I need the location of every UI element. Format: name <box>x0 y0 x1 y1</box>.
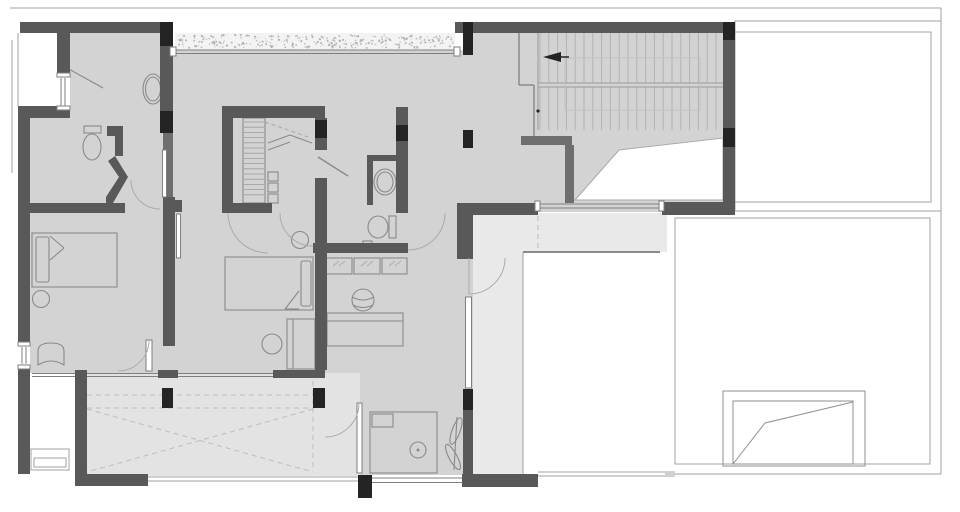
rect-shape <box>723 128 735 147</box>
rect-shape <box>463 130 473 148</box>
rect-shape <box>170 47 176 56</box>
rect-shape <box>20 22 173 33</box>
rect-shape <box>115 136 123 156</box>
rect-shape <box>57 106 70 110</box>
rect-shape <box>463 389 473 410</box>
rect-shape <box>163 243 175 346</box>
rect-shape <box>222 118 233 206</box>
door-leaf <box>466 297 472 388</box>
rect-shape <box>30 108 173 213</box>
rect-shape <box>57 33 70 75</box>
rect-shape <box>473 252 523 475</box>
sliding-door-leaf <box>177 214 181 258</box>
rect-shape <box>733 401 853 464</box>
window-bath-west <box>57 75 70 108</box>
rect-shape <box>160 111 173 133</box>
rect-shape <box>565 145 574 203</box>
terrace-lower-outline <box>675 218 930 464</box>
rect-shape <box>75 370 87 476</box>
rect-shape <box>462 474 538 487</box>
rect-shape <box>18 367 30 474</box>
rect-shape <box>358 475 372 498</box>
rect-shape <box>396 107 408 213</box>
rect-shape <box>723 22 735 40</box>
rect-shape <box>723 22 735 213</box>
planter-band <box>175 33 455 50</box>
rect-shape <box>315 178 327 370</box>
rect-shape <box>313 243 408 253</box>
window-west <box>18 345 30 366</box>
rect-shape <box>57 73 70 77</box>
rect-shape <box>454 47 460 56</box>
corridor-floor <box>473 213 667 252</box>
circle-shape <box>536 109 539 112</box>
rect-shape <box>457 203 538 215</box>
floor-plan-svg <box>0 0 960 512</box>
rect-shape <box>18 365 30 369</box>
rect-shape <box>162 388 173 408</box>
circle-shape <box>417 449 420 452</box>
rect-shape <box>273 370 325 378</box>
rect-shape <box>313 388 325 408</box>
rect-shape <box>18 118 30 345</box>
rect-shape <box>735 32 931 202</box>
terrace-upper-outline <box>735 21 941 211</box>
rect-shape <box>158 370 178 378</box>
floor-plan-canvas <box>0 0 960 512</box>
room-bedroom-1 <box>30 213 163 373</box>
rect-shape <box>160 22 173 46</box>
rect-shape <box>20 203 125 213</box>
stair-treads-lower <box>540 87 716 130</box>
rect-shape <box>455 22 735 33</box>
path-shape <box>733 402 853 464</box>
rect-shape <box>367 161 373 205</box>
rect-shape <box>659 201 664 211</box>
rect-shape <box>535 201 540 211</box>
rect-shape <box>107 126 123 136</box>
room-bedroom-2 <box>163 213 327 373</box>
rect-shape <box>173 200 182 212</box>
rect-shape <box>34 458 66 467</box>
sliding-door-leaf <box>163 150 167 197</box>
rect-shape <box>315 120 327 138</box>
rect-shape <box>396 125 408 141</box>
rect-shape <box>222 106 325 118</box>
rect-shape <box>18 342 30 346</box>
skylight <box>723 391 865 466</box>
rect-shape <box>463 22 473 55</box>
rect-shape <box>75 474 148 486</box>
rect-shape <box>521 136 572 145</box>
rect-shape <box>222 203 272 213</box>
rect-shape <box>457 215 473 259</box>
room-bathroom-1 <box>70 30 173 112</box>
